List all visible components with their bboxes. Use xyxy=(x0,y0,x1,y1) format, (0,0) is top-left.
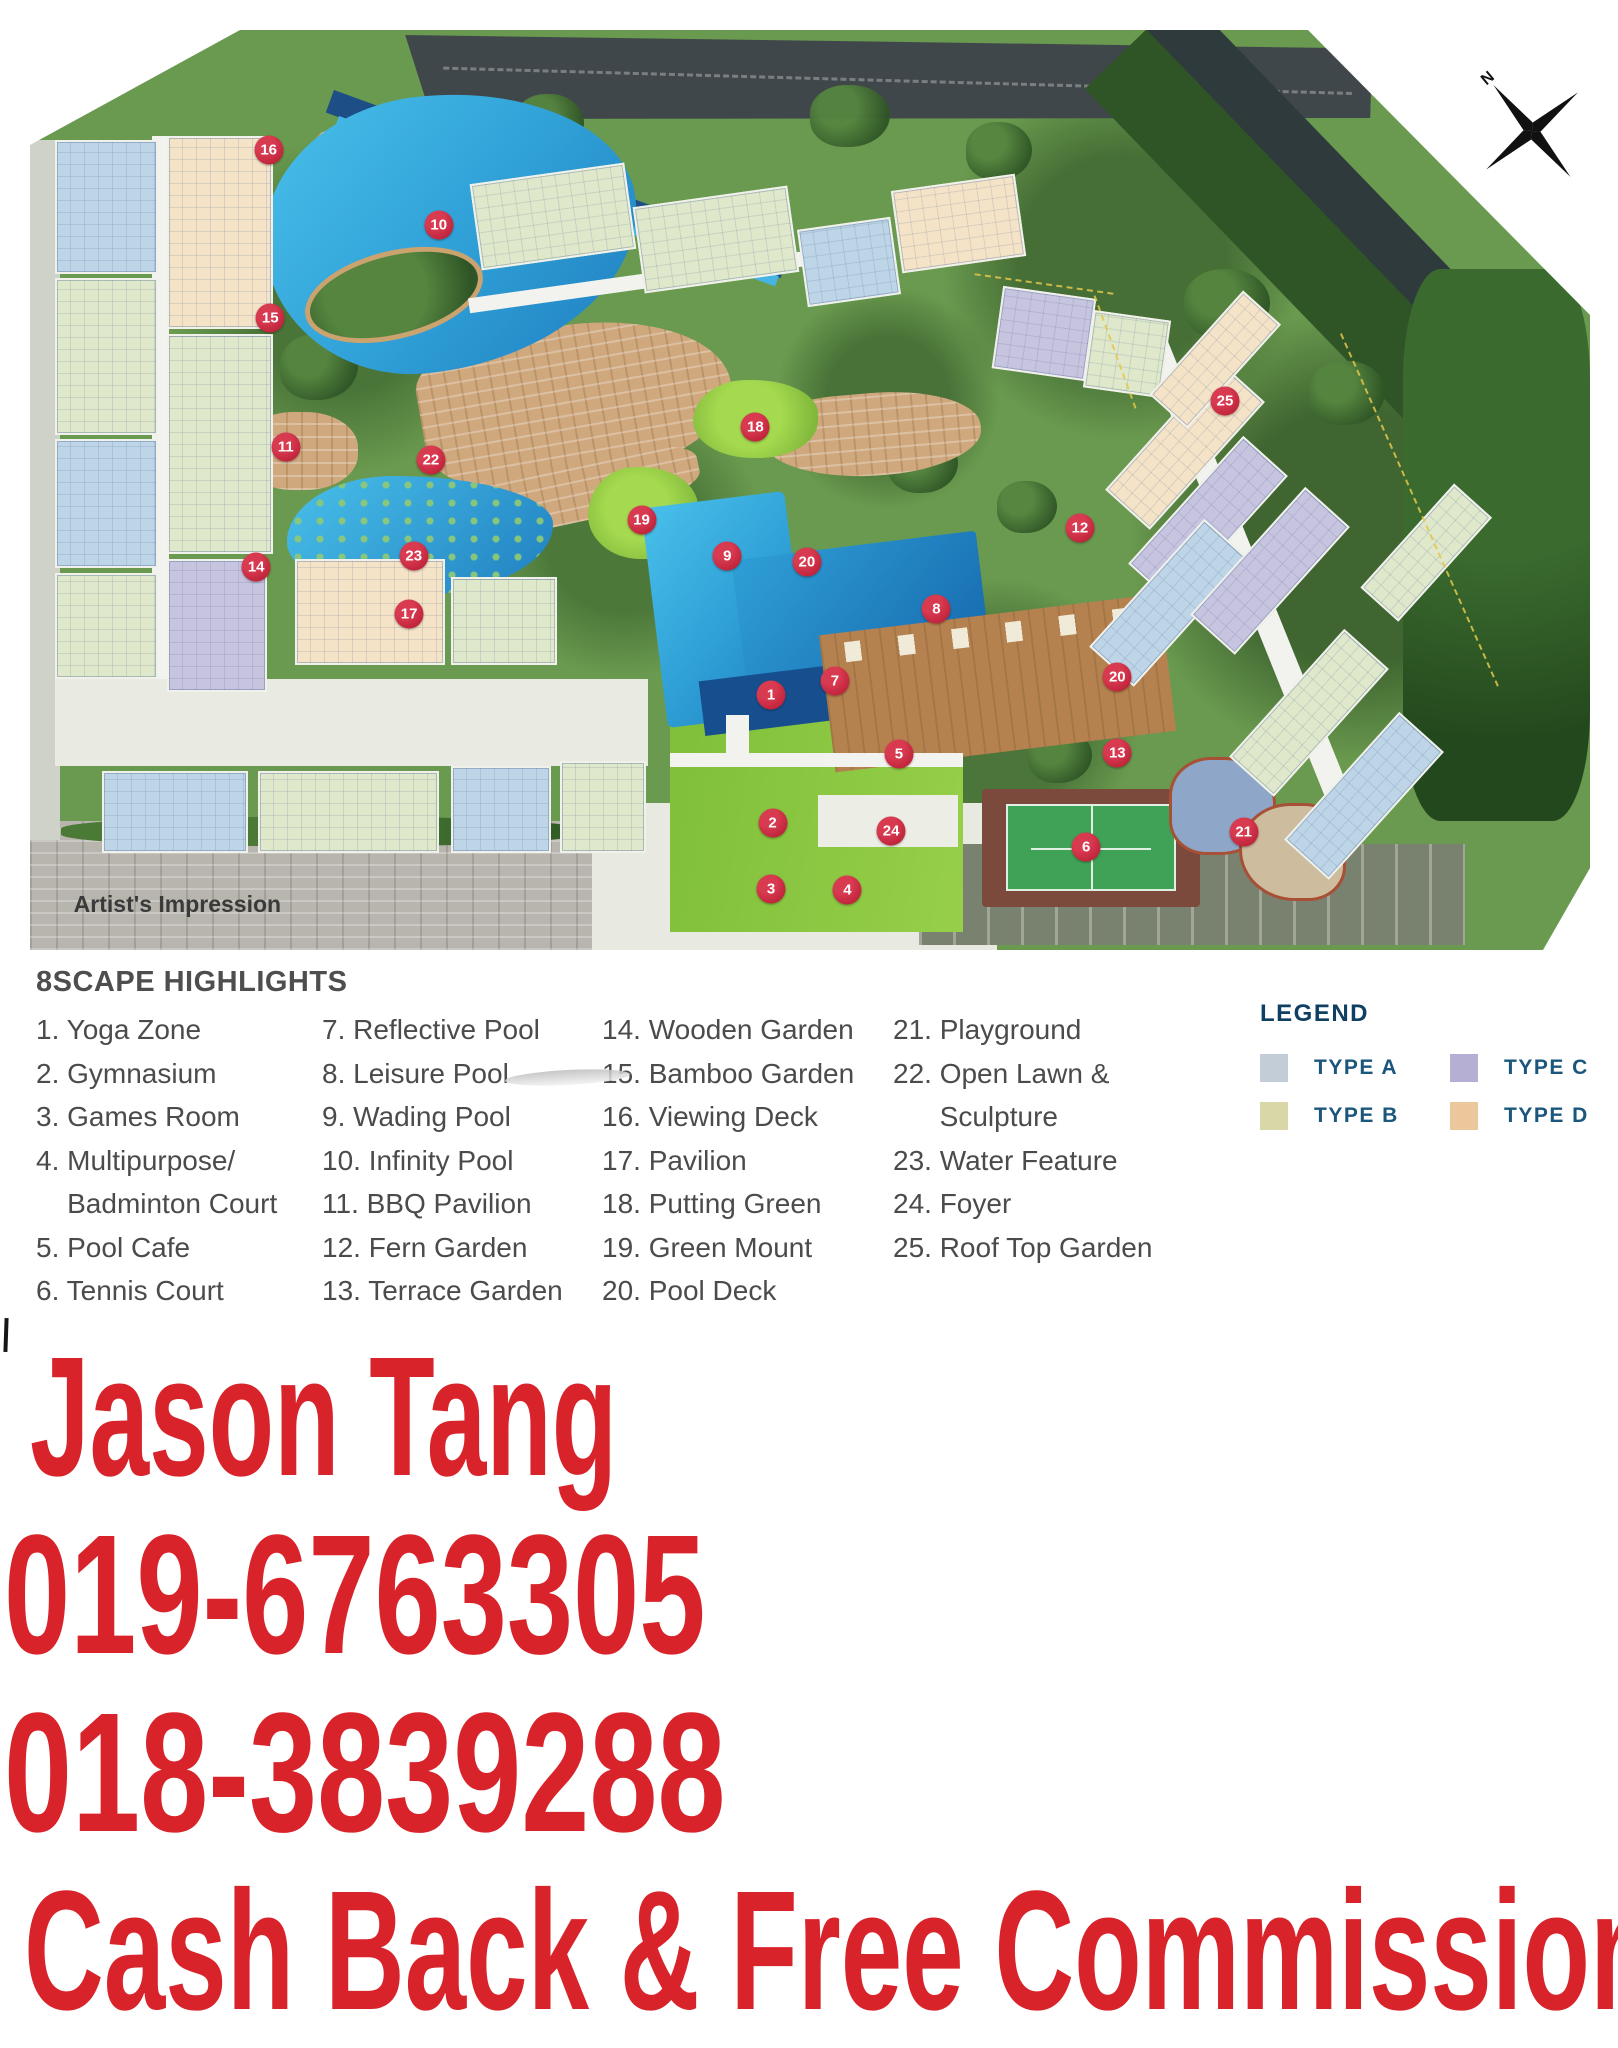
building-block-type-B xyxy=(258,771,439,854)
map-marker-24: 24 xyxy=(877,817,906,846)
map-marker-8: 8 xyxy=(922,594,951,623)
highlights-column-4: 21. Playground22. Open Lawn & Sculpture2… xyxy=(893,1008,1152,1269)
building-block-type-A xyxy=(102,771,249,854)
highlight-item: 3. Games Room xyxy=(36,1095,277,1139)
stray-tick-artifact xyxy=(3,1318,8,1352)
building-block-type-A xyxy=(797,217,901,307)
agent-phone-1: 019-6763305 xyxy=(4,1510,705,1680)
map-marker-6: 6 xyxy=(1072,832,1101,861)
legend-grid: TYPE ATYPE CTYPE BTYPE D xyxy=(1260,1044,1610,1140)
legend-label: TYPE A xyxy=(1314,1056,1398,1080)
map-marker-21: 21 xyxy=(1229,818,1258,847)
building-block-type-A xyxy=(55,140,158,273)
map-marker-15: 15 xyxy=(256,303,285,332)
map-marker-3: 3 xyxy=(757,875,786,904)
highlight-item: 21. Playground xyxy=(893,1008,1152,1052)
map-marker-14: 14 xyxy=(242,553,271,582)
legend-item: TYPE C xyxy=(1450,1044,1610,1092)
bottom-left-court xyxy=(55,679,648,766)
highlight-item: 7. Reflective Pool xyxy=(322,1008,563,1052)
legend: LEGEND TYPE ATYPE CTYPE BTYPE D xyxy=(1260,1000,1610,1140)
legend-swatch xyxy=(1260,1054,1288,1082)
map-marker-17: 17 xyxy=(395,600,424,629)
building-block-type-B xyxy=(451,577,557,664)
map-marker-18: 18 xyxy=(741,413,770,442)
map-marker-20: 20 xyxy=(792,547,821,576)
legend-item: TYPE D xyxy=(1450,1092,1610,1140)
highlight-item: 1. Yoga Zone xyxy=(36,1008,277,1052)
highlight-item: 10. Infinity Pool xyxy=(322,1139,563,1183)
highlight-item: Badminton Court xyxy=(36,1182,277,1226)
highlight-item: 5. Pool Cafe xyxy=(36,1226,277,1270)
highlight-item: 23. Water Feature xyxy=(893,1139,1152,1183)
agent-name: Jason Tang xyxy=(30,1332,617,1502)
legend-label: TYPE C xyxy=(1504,1056,1589,1080)
building-block-type-D xyxy=(167,136,273,329)
highlight-item: 15. Bamboo Garden xyxy=(602,1052,854,1096)
building-block-type-B xyxy=(55,278,158,434)
map-marker-23: 23 xyxy=(399,542,428,571)
highlight-item: 18. Putting Green xyxy=(602,1182,854,1226)
highlight-item: 19. Green Mount xyxy=(602,1226,854,1270)
highlight-item: Sculpture xyxy=(893,1095,1152,1139)
legend-item: TYPE A xyxy=(1260,1044,1450,1092)
building-block-type-B xyxy=(167,334,273,555)
highlight-item: 20. Pool Deck xyxy=(602,1269,854,1313)
lawn-path xyxy=(726,715,749,767)
map-marker-1: 1 xyxy=(757,681,786,710)
building-block-type-C xyxy=(992,286,1096,381)
legend-title: LEGEND xyxy=(1260,1000,1610,1028)
map-marker-9: 9 xyxy=(713,542,742,571)
highlight-item: 9. Wading Pool xyxy=(322,1095,563,1139)
map-marker-22: 22 xyxy=(416,445,445,474)
agent-phone-2: 018-3839288 xyxy=(4,1688,725,1858)
building-block-type-A xyxy=(55,439,158,568)
map-marker-19: 19 xyxy=(627,506,656,535)
map-marker-13: 13 xyxy=(1103,739,1132,768)
highlight-item: 4. Multipurpose/ xyxy=(36,1139,277,1183)
highlight-item: 2. Gymnasium xyxy=(36,1052,277,1096)
building-block-type-B xyxy=(560,761,646,853)
legend-swatch xyxy=(1450,1102,1478,1130)
highlight-item: 16. Viewing Deck xyxy=(602,1095,854,1139)
lawn-path xyxy=(670,753,963,767)
map-marker-7: 7 xyxy=(820,667,849,696)
highlights-title: 8SCAPE HIGHLIGHTS xyxy=(36,966,347,999)
map-marker-10: 10 xyxy=(424,211,453,240)
map-marker-2: 2 xyxy=(758,809,787,838)
highlight-item: 11. BBQ Pavilion xyxy=(322,1182,563,1226)
building-block-type-A xyxy=(451,766,551,853)
highlights-column-1: 1. Yoga Zone2. Gymnasium3. Games Room4. … xyxy=(36,1008,277,1313)
legend-label: TYPE D xyxy=(1504,1104,1589,1128)
map-marker-12: 12 xyxy=(1065,513,1094,542)
site-plan: N 16101511221825121992023141787120513224… xyxy=(30,30,1590,950)
highlight-item: 17. Pavilion xyxy=(602,1139,854,1183)
legend-label: TYPE B xyxy=(1314,1104,1399,1128)
map-marker-20: 20 xyxy=(1103,662,1132,691)
building-block-type-D xyxy=(891,174,1026,273)
flyer-page: N 16101511221825121992023141787120513224… xyxy=(0,0,1618,2048)
legend-swatch xyxy=(1260,1102,1288,1130)
map-marker-25: 25 xyxy=(1210,386,1239,415)
highlight-item: 6. Tennis Court xyxy=(36,1269,277,1313)
highlights-column-3: 14. Wooden Garden15. Bamboo Garden16. Vi… xyxy=(602,1008,854,1313)
highlight-item: 24. Foyer xyxy=(893,1182,1152,1226)
highlight-item: 12. Fern Garden xyxy=(322,1226,563,1270)
legend-swatch xyxy=(1450,1054,1478,1082)
svg-text:N: N xyxy=(1478,68,1498,88)
artists-impression-caption: Artist's Impression xyxy=(74,891,281,918)
map-marker-16: 16 xyxy=(254,135,283,164)
map-marker-4: 4 xyxy=(833,876,862,905)
compass-rose-icon: N xyxy=(1470,65,1590,185)
legend-item: TYPE B xyxy=(1260,1092,1450,1140)
map-marker-11: 11 xyxy=(271,432,300,461)
highlights-column-2: 7. Reflective Pool8. Leisure Pool9. Wadi… xyxy=(322,1008,563,1313)
highlight-item: 25. Roof Top Garden xyxy=(893,1226,1152,1270)
highlight-item: 22. Open Lawn & xyxy=(893,1052,1152,1096)
highlight-item: 13. Terrace Garden xyxy=(322,1269,563,1313)
map-marker-5: 5 xyxy=(884,740,913,769)
promo-tagline: Cash Back & Free Commission xyxy=(24,1866,1618,2036)
highlight-item: 14. Wooden Garden xyxy=(602,1008,854,1052)
building-block-type-B xyxy=(55,573,158,679)
